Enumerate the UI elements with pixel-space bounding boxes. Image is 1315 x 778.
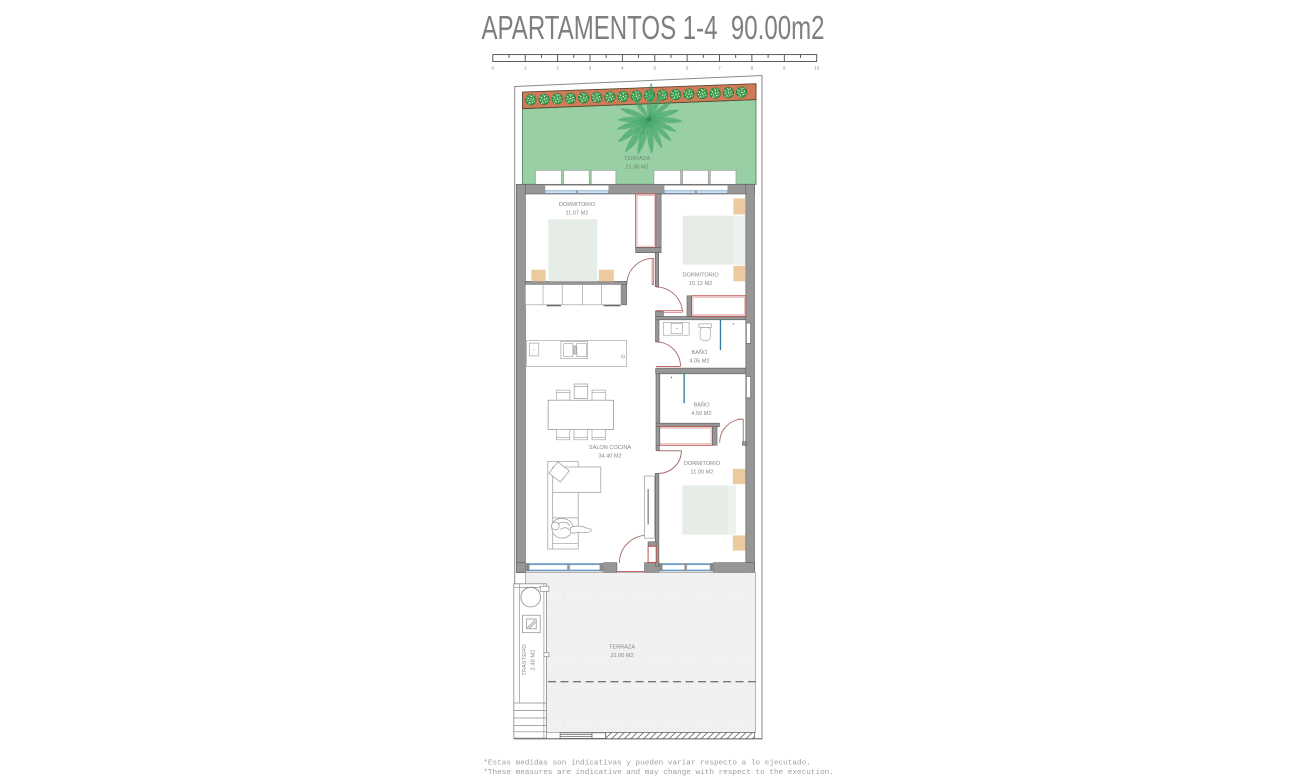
svg-text:1: 1 xyxy=(524,66,527,71)
svg-text:0: 0 xyxy=(492,66,495,71)
svg-text:DORMITORIO: DORMITORIO xyxy=(682,273,719,279)
svg-text:*Estas medidas son indicativas: *Estas medidas son indicativas y pueden … xyxy=(483,760,811,768)
svg-text:34.40 M2: 34.40 M2 xyxy=(598,454,621,460)
svg-text:7: 7 xyxy=(718,66,721,71)
svg-text:15.12 M2: 15.12 M2 xyxy=(689,281,712,287)
svg-text:TRASTERO: TRASTERO xyxy=(522,644,528,676)
svg-text:10: 10 xyxy=(814,66,820,71)
svg-text:2.48 M2: 2.48 M2 xyxy=(531,650,537,671)
svg-text:11.07 M2: 11.07 M2 xyxy=(566,211,589,217)
svg-text:8: 8 xyxy=(751,66,754,71)
svg-text:2: 2 xyxy=(556,66,559,71)
svg-text:3: 3 xyxy=(589,66,592,71)
svg-text:*These measures are indicative: *These measures are indicative and may c… xyxy=(483,769,834,777)
svg-text:21.38 M2: 21.38 M2 xyxy=(625,165,648,171)
svg-text:DORMITORIO: DORMITORIO xyxy=(559,202,596,208)
svg-text:BAÑO: BAÑO xyxy=(691,349,708,356)
svg-text:6: 6 xyxy=(686,66,689,71)
svg-text:4.50 M2: 4.50 M2 xyxy=(691,411,711,417)
svg-text:11.00 M2: 11.00 M2 xyxy=(691,470,714,476)
svg-text:TERRAZA: TERRAZA xyxy=(624,156,650,162)
svg-text:31.00 M2: 31.00 M2 xyxy=(610,653,633,659)
svg-text:4: 4 xyxy=(621,66,624,71)
svg-text:4.05 M2: 4.05 M2 xyxy=(689,359,709,365)
svg-text:9: 9 xyxy=(783,66,786,71)
svg-text:APARTAMENTOS 1-4 90.00m2: APARTAMENTOS 1-4 90.00m2 xyxy=(482,9,825,46)
svg-text:BAÑO: BAÑO xyxy=(694,402,711,409)
svg-text:SALON COCINA: SALON COCINA xyxy=(589,445,632,451)
svg-text:DORMITORIO: DORMITORIO xyxy=(684,461,721,467)
svg-text:TERRAZA: TERRAZA xyxy=(609,645,635,651)
svg-text:5: 5 xyxy=(654,66,657,71)
